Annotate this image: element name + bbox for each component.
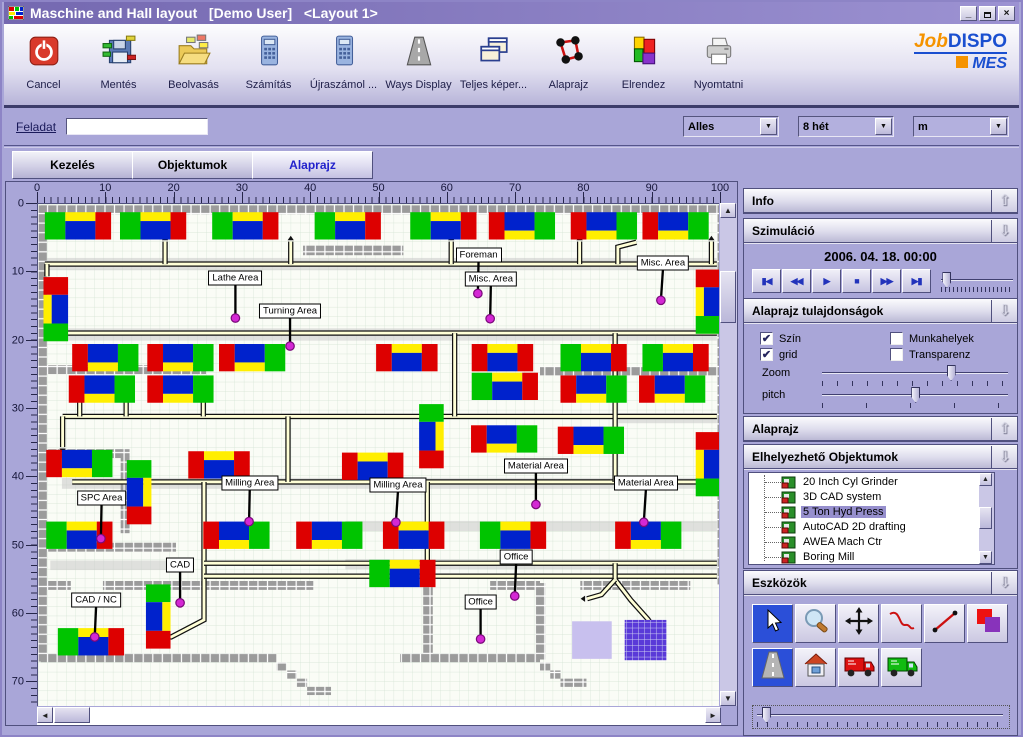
window-title: Maschine and Hall layout [Demo User] <La… <box>30 5 378 21</box>
simulation-datetime: 2006. 04. 18. 00:00 <box>744 244 1017 264</box>
ruler-number: 40 <box>304 182 316 194</box>
toolbar-button-ment-s[interactable]: Mentés <box>81 26 156 102</box>
machine[interactable] <box>45 212 111 239</box>
area-waypoint-dot[interactable] <box>532 500 540 508</box>
slider-ticks <box>941 287 1013 292</box>
area-waypoint-dot[interactable] <box>476 635 484 643</box>
logo-square <box>956 56 968 68</box>
checkbox-label: Munkahelyek <box>909 333 974 345</box>
zoom-icon <box>801 606 831 641</box>
slider-label-pitch: pitch <box>762 389 785 401</box>
machine[interactable] <box>696 432 719 496</box>
label-line <box>101 505 102 538</box>
machine[interactable] <box>472 344 533 371</box>
simulation-slider-thumb[interactable] <box>942 272 951 288</box>
ruler-number: 20 <box>167 182 179 194</box>
curve-icon <box>887 606 917 641</box>
toolbar-button-ways-display[interactable]: Ways Display <box>381 26 456 102</box>
checkbox-row: Munkahelyek <box>890 332 974 345</box>
area-waypoint-dot[interactable] <box>90 633 98 641</box>
area-waypoint-dot[interactable] <box>474 289 482 297</box>
list-scroll-thumb[interactable] <box>979 507 992 529</box>
area-waypoint-dot[interactable] <box>640 518 648 526</box>
toolbar-button-elrendez[interactable]: Elrendez <box>606 26 681 102</box>
area-waypoint-dot[interactable] <box>486 315 494 323</box>
machine[interactable] <box>560 344 626 371</box>
placement-zone[interactable] <box>572 621 612 659</box>
logo-job: Job <box>914 31 948 52</box>
chevron-down-icon[interactable]: ▼ <box>760 118 777 135</box>
tree-item-3d-cad-system[interactable]: 3D CAD system <box>749 490 994 505</box>
wall <box>423 581 433 655</box>
checkbox-szín[interactable]: ✔ <box>760 332 773 345</box>
szimulacio-title: Szimuláció <box>744 224 991 238</box>
wall <box>560 679 586 687</box>
machine[interactable] <box>315 212 381 239</box>
layout-canvas-frame: 0102030405060708090100 010203040506070 L… <box>5 181 738 726</box>
machine-icon <box>781 491 796 504</box>
machine[interactable] <box>43 277 68 341</box>
tab-kezelés[interactable]: Kezelés <box>12 151 133 179</box>
ruler-number: 100 <box>711 182 729 194</box>
layout-canvas[interactable]: Lathe AreaTurning AreaForemanMisc. AreaM… <box>37 203 719 706</box>
eszkozok-header: Eszközök ⇩ <box>744 571 1017 595</box>
ruler-number: 50 <box>12 539 24 551</box>
machine[interactable] <box>203 522 269 549</box>
blocks-icon <box>627 34 661 73</box>
toolbar-button-label: Cancel <box>26 79 60 91</box>
info-header: Info ⇧ <box>744 189 1017 213</box>
area-label-foreman[interactable]: Foreman <box>456 247 502 262</box>
ruler-number: 50 <box>372 182 384 194</box>
machine[interactable] <box>369 560 435 587</box>
area-label-cad-nc[interactable]: CAD / NC <box>71 593 121 608</box>
machine[interactable] <box>46 450 112 477</box>
ruler-number: 0 <box>18 198 24 210</box>
ruler-number: 60 <box>12 607 24 619</box>
printer-icon <box>702 34 736 73</box>
checkbox-munkahelyek[interactable] <box>890 332 903 345</box>
truck-green-icon <box>886 650 918 685</box>
tulajdonsagok-section: Alaprajz tulajdonságok ⇩ ✔Szín✔gridMunka… <box>743 298 1018 414</box>
machine[interactable] <box>383 522 444 549</box>
dropdown-value: 8 hét <box>799 121 875 133</box>
area-label-misc-area[interactable]: Misc. Area <box>465 272 517 287</box>
list-scrollbar[interactable]: ▲ ▼ <box>979 473 994 564</box>
dropdown-value: Alles <box>684 121 760 133</box>
open-icon <box>177 34 211 73</box>
scroll-down-button[interactable]: ▼ <box>979 551 992 564</box>
machine[interactable] <box>376 344 437 371</box>
info-section: Info ⇧ <box>743 188 1018 214</box>
house-icon <box>801 650 831 685</box>
select-tool-button[interactable] <box>752 604 793 643</box>
checkbox-label: Szín <box>779 333 801 345</box>
wall <box>297 679 307 687</box>
tab-alaprajz[interactable]: Alaprajz <box>252 151 373 179</box>
ruler-number: 70 <box>509 182 521 194</box>
road-tool-button[interactable] <box>752 648 793 687</box>
filter-dropdown-2[interactable]: m▼ <box>913 116 1009 137</box>
checkbox-label: Transparenz <box>909 349 970 361</box>
truck-green-tool-button[interactable] <box>881 648 922 687</box>
machine[interactable] <box>558 427 624 454</box>
tulajdonsagok-title: Alaprajz tulajdonságok <box>744 304 991 318</box>
area-label-cad[interactable]: CAD <box>166 558 194 573</box>
objektumok-section: Elhelyezhető Objektumok ⇩ 20 Inch Cyl Gr… <box>743 444 1018 569</box>
toolbar-button-label: Ways Display <box>385 79 451 91</box>
checkbox-transparenz[interactable] <box>890 348 903 361</box>
collapse-up-icon[interactable]: ⇧ <box>991 418 1017 440</box>
tool-slider-track[interactable] <box>757 714 1003 716</box>
machine-icon <box>781 476 796 489</box>
pitch-slider-thumb[interactable] <box>911 387 920 403</box>
machine[interactable] <box>72 344 138 371</box>
toolbar: CancelMentésBeolvasásSzámításÚjraszámol … <box>4 24 1019 105</box>
machine[interactable] <box>342 453 403 480</box>
select-icon <box>759 607 787 640</box>
machine[interactable] <box>58 628 124 655</box>
wall <box>400 653 540 662</box>
toolbar-button-label: Alaprajz <box>549 79 589 91</box>
ruler-number: 0 <box>34 182 40 194</box>
eszkozok-section: Eszközök ⇩ <box>743 570 1018 736</box>
machine[interactable] <box>147 344 213 371</box>
logo-dispo: DISPO <box>948 31 1007 52</box>
windows-icon <box>477 34 511 73</box>
area-label-office[interactable]: Office <box>500 550 533 565</box>
road-icon <box>402 34 436 73</box>
tulajdonsagok-body: ✔Szín✔gridMunkahelyekTransparenzZoom pit… <box>744 323 1017 413</box>
toolbar-button-label: Elrendez <box>622 79 665 91</box>
minimize-button[interactable]: _ <box>960 6 977 21</box>
wall <box>540 662 550 670</box>
alaprajz-header: Alaprajz ⇧ <box>744 417 1017 441</box>
toolbar-button-cancel[interactable]: Cancel <box>6 26 81 102</box>
scroll-left-button[interactable]: ◄ <box>37 707 53 723</box>
feladat-input[interactable] <box>66 118 208 135</box>
line-tool-button[interactable] <box>924 604 965 643</box>
machine[interactable] <box>69 375 135 402</box>
machine[interactable] <box>296 522 362 549</box>
skip-end-button[interactable]: ▶▮ <box>902 269 931 293</box>
wall <box>550 670 560 678</box>
machine[interactable] <box>147 375 213 402</box>
machine[interactable] <box>489 212 555 239</box>
graph-icon <box>552 34 586 73</box>
toolbar-button-label: Teljes képer... <box>460 79 527 91</box>
machine[interactable] <box>560 375 626 402</box>
vertical-ruler: 010203040506070 <box>6 203 37 706</box>
info-title: Info <box>744 194 991 208</box>
ruler-number: 70 <box>12 676 24 688</box>
skip-start-button[interactable]: ▮◀ <box>752 269 781 293</box>
szimulacio-header: Szimuláció ⇩ <box>744 219 1017 243</box>
chevron-down-icon[interactable]: ▼ <box>990 118 1007 135</box>
area-label-material-area[interactable]: Material Area <box>614 476 678 491</box>
machine[interactable] <box>219 344 285 371</box>
ruler-number: 40 <box>12 471 24 483</box>
alaprajz-title: Alaprajz <box>744 422 991 436</box>
wall <box>717 205 719 584</box>
alaprajz-section: Alaprajz ⇧ <box>743 416 1018 442</box>
wall <box>307 687 331 695</box>
machine[interactable] <box>120 212 186 239</box>
area-waypoint-dot[interactable] <box>176 599 184 607</box>
machine[interactable] <box>410 212 476 239</box>
machine[interactable] <box>472 373 538 400</box>
area-waypoint-dot[interactable] <box>245 517 253 525</box>
area-waypoint-dot[interactable] <box>231 314 239 322</box>
label-line <box>490 286 491 319</box>
logo-mes: MES <box>972 55 1007 72</box>
machine[interactable] <box>471 425 537 452</box>
machine[interactable] <box>480 522 546 549</box>
objektumok-title: Elhelyezhető Objektumok <box>744 450 991 464</box>
tulajdonsagok-header: Alaprajz tulajdonságok ⇩ <box>744 299 1017 323</box>
area-label-spc-area[interactable]: SPC Area <box>77 491 127 506</box>
wall <box>287 670 297 678</box>
slider-label-Zoom: Zoom <box>762 367 790 379</box>
app-window: Maschine and Hall layout [Demo User] <La… <box>0 0 1023 737</box>
area-label-lathe-area[interactable]: Lathe Area <box>208 271 262 286</box>
machine[interactable] <box>642 212 708 239</box>
szimulacio-body: 2006. 04. 18. 00:00 ▮◀◀◀▶■▶▶▶▮ <box>744 243 1017 305</box>
machine[interactable] <box>571 212 637 239</box>
collapse-up-icon[interactable]: ⇧ <box>991 190 1017 212</box>
overlap-icon <box>973 606 1003 641</box>
rewind-button[interactable]: ◀◀ <box>782 269 811 293</box>
slider-ticks <box>822 403 1008 408</box>
stop-button[interactable]: ■ <box>842 269 871 293</box>
tool-slider-thumb[interactable] <box>762 707 771 723</box>
window-controls: _ × <box>960 6 1015 21</box>
area-label-milling-area[interactable]: Milling Area <box>221 475 278 490</box>
ruler-number: 80 <box>577 182 589 194</box>
zoom-tool-button[interactable] <box>795 604 836 643</box>
playback-controls: ▮◀◀◀▶■▶▶▶▮ <box>744 267 1017 297</box>
toolbar-button-label: Újraszámol ... <box>310 79 377 91</box>
machine[interactable] <box>419 404 444 468</box>
app-icon <box>8 6 24 20</box>
tree-item-boring-mill[interactable]: Boring Mill <box>749 550 994 565</box>
machine[interactable] <box>642 344 708 371</box>
filter-dropdown-0[interactable]: Alles▼ <box>683 116 779 137</box>
szimulacio-section: Szimuláció ⇩ 2006. 04. 18. 00:00 ▮◀◀◀▶■▶… <box>743 218 1018 306</box>
filter-dropdown-1[interactable]: 8 hét▼ <box>798 116 894 137</box>
wall <box>103 581 313 590</box>
machine[interactable] <box>639 375 705 402</box>
filter-dropdowns: Alles▼8 hét▼m▼ <box>683 116 1009 137</box>
ruler-number: 10 <box>12 266 24 278</box>
tree-item-20-inch-cyl-grinder[interactable]: 20 Inch Cyl Grinder <box>749 475 994 490</box>
checkbox-row: ✔grid <box>760 348 797 361</box>
collapse-down-icon[interactable]: ⇩ <box>991 220 1017 242</box>
wall <box>41 581 71 590</box>
area-label-misc-area[interactable]: Misc. Area <box>637 255 689 270</box>
area-waypoint-dot[interactable] <box>657 296 665 304</box>
house-tool-button[interactable] <box>795 648 836 687</box>
checkbox-grid[interactable]: ✔ <box>760 348 773 361</box>
toolbar-button-label: Nyomtatni <box>694 79 744 91</box>
tree-item-label: Boring Mill <box>801 551 856 563</box>
checkbox-label: grid <box>779 349 797 361</box>
objektumok-header: Elhelyezhető Objektumok ⇩ <box>744 445 1017 469</box>
filter-row: Feladat Alles▼8 hét▼m▼ <box>4 108 1019 145</box>
machine-icon <box>781 551 796 564</box>
machine[interactable] <box>615 522 681 549</box>
eszkozok-body <box>744 595 1017 735</box>
canvas-horizontal-scrollbar[interactable]: ◄ ► <box>37 707 721 725</box>
pitch-slider-track[interactable] <box>822 394 1008 396</box>
curve-tool-button[interactable] <box>881 604 922 643</box>
road-icon <box>758 650 788 685</box>
checkbox-row: ✔Szín <box>760 332 801 345</box>
fast-forward-button[interactable]: ▶▶ <box>872 269 901 293</box>
ruler-number: 10 <box>99 182 111 194</box>
tree-item-label: AutoCAD 2D drafting <box>801 521 908 533</box>
zoom-slider-track[interactable] <box>822 372 1008 374</box>
horizontal-ruler: 0102030405060708090100 <box>37 182 721 203</box>
machine[interactable] <box>212 212 278 239</box>
toolbar-button-nyomtatni[interactable]: Nyomtatni <box>681 26 756 102</box>
play-button[interactable]: ▶ <box>812 269 841 293</box>
feladat-label[interactable]: Feladat <box>16 120 56 134</box>
wall <box>276 662 286 670</box>
checkbox-row: Transparenz <box>890 348 970 361</box>
tab-bar: KezelésObjektumokAlaprajz <box>4 148 1019 180</box>
canvas-vertical-scrollbar[interactable]: ▲ ▼ <box>720 203 737 706</box>
collapse-down-icon[interactable]: ⇩ <box>991 572 1017 594</box>
toolbar-button-beolvas-s[interactable]: Beolvasás <box>156 26 231 102</box>
save-icon <box>102 34 136 73</box>
line-icon <box>930 606 960 641</box>
zoom-slider-thumb[interactable] <box>947 365 956 381</box>
area-label-milling-area[interactable]: Milling Area <box>369 477 426 492</box>
right-panel: Info ⇧ Szimuláció ⇩ 2006. 04. 18. 00:00 … <box>741 181 1022 737</box>
machine-icon <box>781 506 796 519</box>
slider-ticks <box>757 722 1003 727</box>
machine[interactable] <box>146 584 171 648</box>
ruler-number: 30 <box>12 402 24 414</box>
tool-slider[interactable] <box>752 705 1010 729</box>
tree-item-autocad-2d-drafting[interactable]: AutoCAD 2D drafting <box>749 520 994 535</box>
area-label-turning-area[interactable]: Turning Area <box>259 303 321 318</box>
collapse-down-icon[interactable]: ⇩ <box>991 446 1017 468</box>
area-label-material-area[interactable]: Material Area <box>504 459 568 474</box>
placement-zone-grid[interactable] <box>625 620 667 660</box>
ruler-number: 90 <box>646 182 658 194</box>
wall <box>303 246 403 256</box>
toolbar-button-label: Mentés <box>100 79 136 91</box>
overlap-tool-button[interactable] <box>967 604 1008 643</box>
ruler-number: 60 <box>441 182 453 194</box>
eszkozok-title: Eszközök <box>744 576 991 590</box>
ruler-number: 30 <box>236 182 248 194</box>
area-waypoint-dot[interactable] <box>97 534 105 542</box>
scroll-up-button[interactable]: ▲ <box>720 203 736 218</box>
horizontal-scroll-thumb[interactable] <box>54 707 90 723</box>
toolbar-button-label: Beolvasás <box>168 79 219 91</box>
truck-red-tool-button[interactable] <box>838 648 879 687</box>
area-label-office[interactable]: Office <box>464 595 497 610</box>
slider-ticks <box>822 381 1008 386</box>
truck-red-icon <box>843 650 875 685</box>
toolbar-button-alaprajz[interactable]: Alaprajz <box>531 26 606 102</box>
toolbar-button-label: Számítás <box>246 79 292 91</box>
power-icon <box>27 34 61 73</box>
toolbar-button--jrasz-mol-[interactable]: Újraszámol ... <box>306 26 381 102</box>
tree-item-label: 5 Ton Hyd Press <box>801 506 886 518</box>
object-tree-list[interactable]: 20 Inch Cyl Grinder3D CAD system5 Ton Hy… <box>748 472 995 565</box>
area-waypoint-dot[interactable] <box>286 342 294 350</box>
area-waypoint-dot[interactable] <box>392 518 400 526</box>
scroll-down-button[interactable]: ▼ <box>720 691 736 706</box>
vertical-scroll-thumb[interactable] <box>720 271 736 323</box>
machine[interactable] <box>696 270 719 334</box>
calculator-icon <box>252 34 286 73</box>
machine-icon <box>781 536 796 549</box>
chevron-down-icon[interactable]: ▼ <box>875 118 892 135</box>
scroll-right-button[interactable]: ► <box>705 707 721 723</box>
area-waypoint-dot[interactable] <box>511 592 519 600</box>
calculator-icon <box>327 34 361 73</box>
collapse-down-icon[interactable]: ⇩ <box>991 300 1017 322</box>
ruler-number: 20 <box>12 334 24 346</box>
restore-button[interactable] <box>979 6 996 21</box>
wall <box>580 581 690 590</box>
simulation-slider-track[interactable] <box>941 279 1013 281</box>
title-bar: Maschine and Hall layout [Demo User] <La… <box>4 2 1019 24</box>
move-tool-button[interactable] <box>838 604 879 643</box>
scroll-up-button[interactable]: ▲ <box>979 473 992 486</box>
objektumok-body: 20 Inch Cyl Grinder3D CAD system5 Ton Hy… <box>744 469 1017 568</box>
tree-item-label: AWEA Mach Ctr <box>801 536 884 548</box>
machine[interactable] <box>127 460 152 524</box>
jobdispo-logo: JobDISPO MES <box>914 32 1007 73</box>
restore-icon <box>984 12 991 18</box>
tree-item-5-ton-hyd-press[interactable]: 5 Ton Hyd Press <box>749 505 994 520</box>
wall <box>536 583 546 659</box>
dropdown-value: m <box>914 121 990 133</box>
tree-item-awea-mach-ctr[interactable]: AWEA Mach Ctr <box>749 535 994 550</box>
toolbar-button-sz-m-t-s[interactable]: Számítás <box>231 26 306 102</box>
aisle <box>50 561 176 571</box>
move-icon <box>844 606 874 641</box>
close-button[interactable]: × <box>998 6 1015 21</box>
tree-item-label: 3D CAD system <box>801 491 883 503</box>
tree-item-label: 20 Inch Cyl Grinder <box>801 476 900 488</box>
toolbar-button-teljes-k-per-[interactable]: Teljes képer... <box>456 26 531 102</box>
machine-icon <box>781 521 796 534</box>
tab-objektumok[interactable]: Objektumok <box>132 151 253 179</box>
